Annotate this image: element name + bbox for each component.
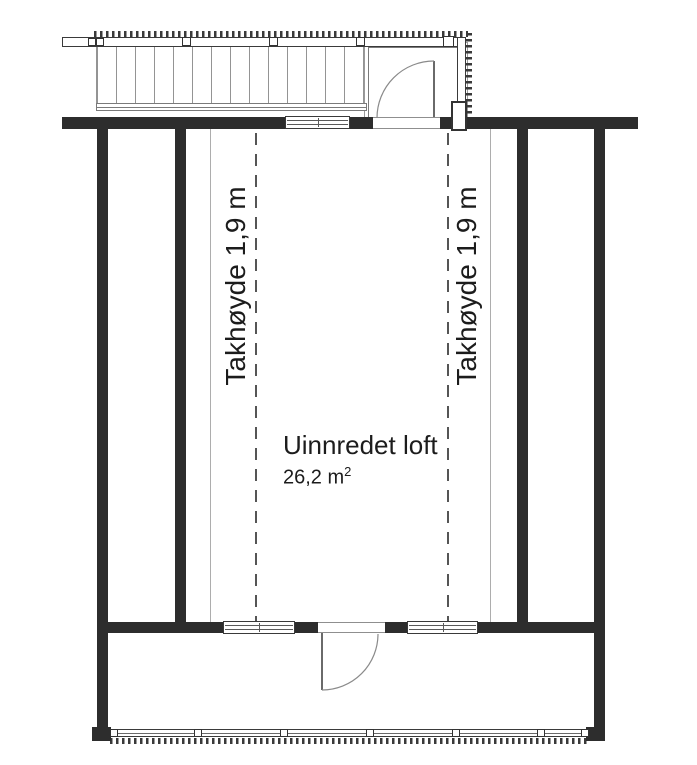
terrace-railing-post (194, 729, 202, 737)
ceiling-height-dashed-line-right (447, 133, 449, 629)
room-label: Uinnredet loft 26,2 m2 (283, 430, 438, 490)
terrace-railing-post (280, 729, 288, 737)
terrace-railing-tick-band (110, 738, 590, 744)
window-divider (443, 623, 444, 632)
staircase-treads (96, 47, 367, 104)
door-frame-post (451, 101, 467, 131)
window-divider (259, 623, 260, 632)
room-area-superscript: 2 (344, 464, 351, 479)
floor-plan-canvas: Takhøyde 1,9 m Takhøyde 1,9 m Uinnredet … (0, 0, 697, 765)
room-area: 26,2 m2 (283, 460, 438, 490)
terrace-railing-post (110, 729, 118, 737)
terrace-railing-rail (107, 729, 596, 737)
exterior-wall-top (62, 117, 638, 129)
staircase-base-line (96, 103, 367, 111)
railing-post (88, 38, 96, 46)
room-area-value: 26,2 m (283, 467, 344, 489)
window-bottom-left (223, 621, 295, 634)
interior-wall-right (517, 117, 528, 633)
balcony-door-opening (373, 117, 440, 129)
railing-post (356, 37, 365, 46)
room-name: Uinnredet loft (283, 430, 438, 460)
railing-post (269, 37, 278, 46)
railing-post (182, 37, 191, 46)
terrace-railing-post (452, 729, 460, 737)
railing-corner-post (443, 36, 454, 47)
window-bottom-right (407, 621, 478, 634)
interior-wall-left (175, 117, 186, 633)
exterior-wall-right (594, 117, 605, 728)
window-top (285, 116, 350, 129)
landing-floor (368, 47, 458, 118)
ceiling-height-boundary-left (210, 129, 211, 622)
ceiling-height-boundary-right (490, 129, 491, 622)
terrace-railing-post (581, 729, 589, 737)
ceiling-height-dashed-line-left (255, 133, 257, 629)
terrace-door-opening (318, 622, 385, 633)
exterior-wall-left (97, 117, 108, 728)
label-ceiling-height-right: Takhøyde 1,9 m (452, 176, 482, 396)
railing-post (96, 38, 104, 46)
balcony-door-leaf (433, 61, 435, 118)
balcony-railing-top-rail (94, 37, 466, 47)
window-divider (318, 118, 319, 127)
corner-block-bottom-left (92, 727, 111, 741)
terrace-railing-post (537, 729, 545, 737)
label-ceiling-height-left: Takhøyde 1,9 m (221, 176, 251, 396)
terrace-railing-post (366, 729, 374, 737)
terrace-door-leaf (321, 633, 323, 690)
terrace-door-swing-arc (322, 634, 378, 690)
